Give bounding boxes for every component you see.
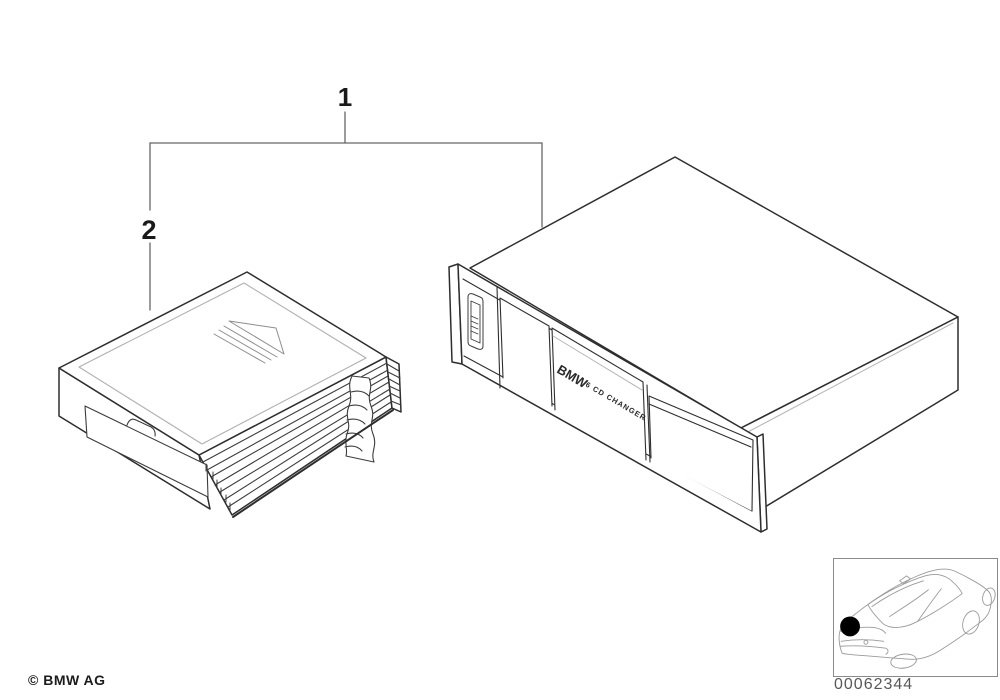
callout-1-label: 1	[338, 82, 352, 112]
car-outline	[839, 569, 997, 670]
car-c-pillar	[890, 590, 929, 617]
car-side-line	[917, 589, 941, 622]
callout-2-label: 2	[141, 215, 156, 245]
car-mirror	[900, 576, 911, 584]
part-location-thumbnail	[833, 558, 998, 677]
eject-button	[468, 294, 483, 350]
car-rear-window	[872, 581, 924, 607]
car-wheel-right-front	[980, 586, 997, 607]
part-number-text: 00062344	[834, 676, 913, 694]
car-bumper	[840, 646, 888, 654]
copyright-text: © BMW AG	[28, 672, 106, 688]
magazine-notch	[345, 376, 375, 462]
car-sketch	[834, 559, 997, 676]
car-fuel-cap	[864, 640, 868, 644]
car-roof-glass	[868, 574, 962, 627]
car-trunk-line-2	[841, 640, 884, 641]
car-wheel-right-rear	[960, 609, 982, 637]
car-wheel-rear-left	[890, 652, 917, 669]
cd-magazine-illustration	[59, 272, 401, 517]
cd-changer-illustration: BMW 6 CD CHANGER	[449, 157, 958, 532]
part-location-dot	[840, 617, 860, 637]
parts-diagram-page: 1 2	[0, 0, 1000, 700]
